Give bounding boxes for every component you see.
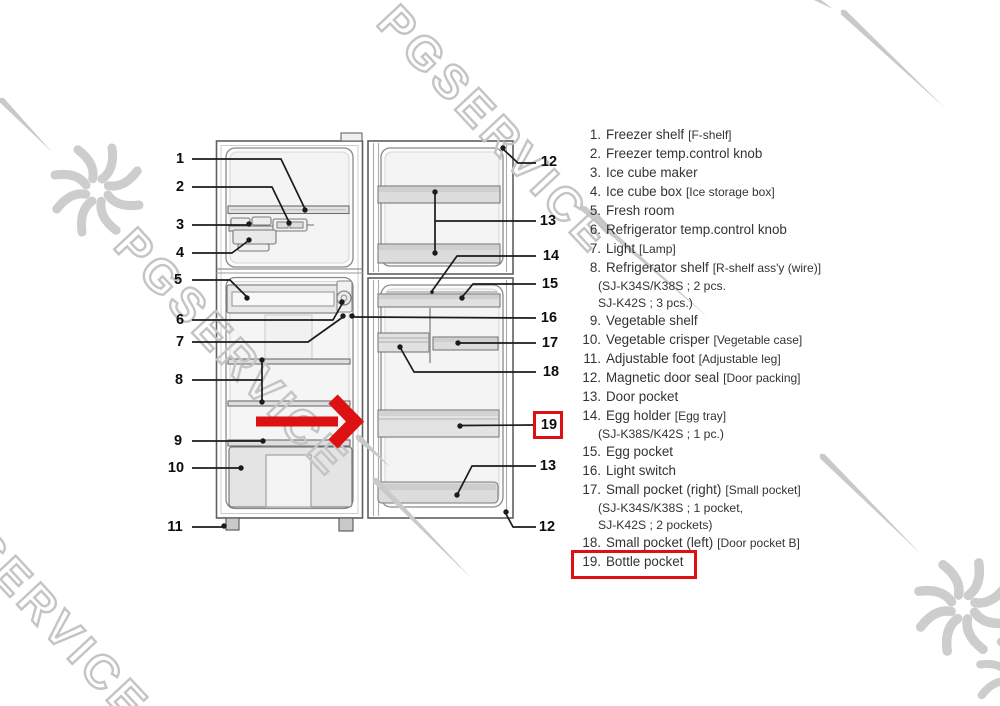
part-list-item: 17.Small pocket (right)[Small pocket] [577, 482, 887, 501]
part-list-item: 8.Refrigerator shelf[R-shelf ass'y (wire… [577, 260, 887, 279]
highlight-box-callout-19 [533, 411, 563, 439]
callout-label-left-5: 5 [174, 272, 182, 288]
highlight-box-item-19 [571, 550, 697, 579]
part-alt-name: [Adjustable leg] [699, 352, 781, 366]
part-name: Small pocket (right) [606, 482, 721, 497]
part-list-item: 7.Light[Lamp] [577, 241, 887, 260]
callout-label-left-6: 6 [176, 312, 184, 328]
part-number: 2. [577, 146, 601, 161]
part-alt-name: [R-shelf ass'y (wire)] [713, 261, 821, 275]
part-number: 8. [577, 260, 601, 275]
callout-label-left-8: 8 [175, 372, 183, 388]
part-model-note: SJ-K42S ; 3 pcs.) [577, 296, 887, 313]
callout-label-right-15: 15 [542, 276, 558, 292]
part-list-item: 5.Fresh room [577, 203, 887, 222]
part-name: Vegetable shelf [606, 313, 698, 328]
part-name: Egg holder [606, 408, 671, 423]
callout-label-right-13: 13 [540, 458, 556, 474]
callout-label-left-7: 7 [176, 334, 184, 350]
callout-label-left-10: 10 [168, 460, 184, 476]
part-name: Adjustable foot [606, 351, 695, 366]
part-model-note: (SJ-K34S/K38S ; 1 pocket, [577, 501, 887, 518]
part-name: Ice cube box [606, 184, 682, 199]
callout-label-right-13: 13 [540, 213, 556, 229]
part-number: 11. [577, 351, 601, 366]
part-number: 12. [577, 370, 601, 385]
part-list-item: 10.Vegetable crisper[Vegetable case] [577, 332, 887, 351]
part-alt-name: [F-shelf] [688, 128, 731, 142]
part-number: 9. [577, 313, 601, 328]
part-list-item: 11.Adjustable foot[Adjustable leg] [577, 351, 887, 370]
callout-label-left-1: 1 [176, 151, 184, 167]
part-alt-name: [Vegetable case] [713, 333, 802, 347]
part-name: Vegetable crisper [606, 332, 709, 347]
part-name: Egg pocket [606, 444, 673, 459]
callout-label-right-16: 16 [541, 310, 557, 326]
callout-label-right-12: 12 [539, 519, 555, 535]
callout-label-right-14: 14 [543, 248, 559, 264]
part-name: Small pocket (left) [606, 535, 713, 550]
part-number: 3. [577, 165, 601, 180]
part-name: Freezer temp.control knob [606, 146, 762, 161]
part-name: Light [606, 241, 635, 256]
part-number: 6. [577, 222, 601, 237]
part-alt-name: [Ice storage box] [686, 185, 775, 199]
part-number: 15. [577, 444, 601, 459]
part-alt-name: [Door pocket B] [717, 536, 800, 550]
part-number: 13. [577, 389, 601, 404]
callout-label-right-17: 17 [542, 335, 558, 351]
part-number: 5. [577, 203, 601, 218]
part-name: Fresh room [606, 203, 674, 218]
part-name: Light switch [606, 463, 676, 478]
part-name: Freezer shelf [606, 127, 684, 142]
part-number: 1. [577, 127, 601, 142]
part-list-item: 16.Light switch [577, 463, 887, 482]
part-number: 18. [577, 535, 601, 550]
part-list-item: 9.Vegetable shelf [577, 313, 887, 332]
service-manual-page: PGSERVICE PGSERVICE PGSERVICE [0, 0, 1000, 706]
callout-label-right-18: 18 [543, 364, 559, 380]
part-list-item: 15.Egg pocket [577, 444, 887, 463]
part-model-note: SJ-K42S ; 2 pockets) [577, 518, 887, 535]
callout-label-left-4: 4 [176, 245, 184, 261]
part-alt-name: [Door packing] [723, 371, 800, 385]
callout-label-left-9: 9 [174, 433, 182, 449]
part-list-item: 3.Ice cube maker [577, 165, 887, 184]
part-number: 10. [577, 332, 601, 347]
part-list-item: 14.Egg holder[Egg tray] [577, 408, 887, 427]
part-name: Door pocket [606, 389, 678, 404]
part-model-note: (SJ-K38S/K42S ; 1 pc.) [577, 427, 887, 444]
callout-label-right-12: 12 [541, 154, 557, 170]
parts-list: 1.Freezer shelf[F-shelf]2.Freezer temp.c… [577, 127, 887, 573]
part-alt-name: [Egg tray] [675, 409, 726, 423]
part-alt-name: [Lamp] [639, 242, 676, 256]
part-name: Refrigerator temp.control knob [606, 222, 787, 237]
callout-label-left-11: 11 [167, 519, 182, 535]
part-number: 17. [577, 482, 601, 497]
part-number: 4. [577, 184, 601, 199]
part-name: Refrigerator shelf [606, 260, 709, 275]
part-number: 16. [577, 463, 601, 478]
part-list-item: 4.Ice cube box[Ice storage box] [577, 184, 887, 203]
part-number: 7. [577, 241, 601, 256]
callout-label-left-2: 2 [176, 179, 184, 195]
part-model-note: (SJ-K34S/K38S ; 2 pcs. [577, 279, 887, 296]
part-list-item: 2.Freezer temp.control knob [577, 146, 887, 165]
callout-dots [221, 145, 508, 528]
part-list-item: 6.Refrigerator temp.control knob [577, 222, 887, 241]
part-list-item: 12.Magnetic door seal[Door packing] [577, 370, 887, 389]
part-alt-name: [Small pocket] [725, 483, 800, 497]
part-list-item: 13.Door pocket [577, 389, 887, 408]
part-name: Magnetic door seal [606, 370, 719, 385]
part-name: Ice cube maker [606, 165, 698, 180]
part-list-item: 1.Freezer shelf[F-shelf] [577, 127, 887, 146]
red-arrow [256, 399, 355, 444]
callout-label-left-3: 3 [176, 217, 184, 233]
part-number: 14. [577, 408, 601, 423]
